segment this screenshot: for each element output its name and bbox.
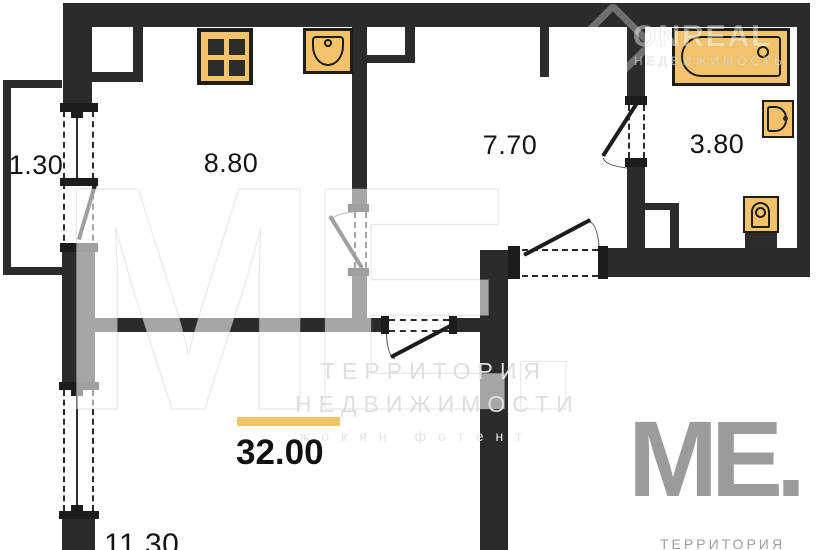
toilet-tank — [745, 233, 777, 248]
washbasin-drain — [783, 116, 788, 121]
wall-shaft2-bottom — [367, 55, 415, 63]
agency-logo: ME. — [628, 405, 799, 513]
kitchen-door-jamb-bottom — [348, 268, 369, 276]
kitchen-door-leaf — [328, 215, 363, 269]
stove-burner — [208, 60, 224, 76]
toilet-seat — [755, 207, 766, 218]
wall-top — [63, 3, 810, 27]
stove-burner — [229, 60, 245, 76]
wall-corridor-vertical — [480, 250, 508, 550]
room-area-label-balcony: 1.30 — [4, 150, 68, 181]
toilet-icon — [743, 196, 779, 233]
wall-shaft1-bottom — [92, 72, 143, 82]
wall-left-mid — [62, 250, 95, 382]
room-area-label-kitchen: 8.80 — [186, 148, 276, 179]
bedroom-door-dash-top — [389, 319, 449, 321]
bedroom-door-jamb-left — [381, 316, 389, 334]
window-sill-bottom — [59, 511, 99, 519]
agency-caption: ТЕРРИТОРИЯ — [660, 536, 785, 550]
wall-divider-stub — [352, 274, 367, 320]
kitchen-door-dash-right — [365, 212, 367, 268]
wall-left-bottom — [62, 519, 95, 550]
kitchen-sink-icon — [303, 28, 353, 74]
room-area-label-hall: 7.70 — [465, 130, 555, 161]
wall-right — [797, 27, 810, 277]
balcony-door-jamb-bottom — [60, 243, 98, 252]
entrance-door-jamb-left — [508, 246, 520, 279]
bathroom-door-leaf — [601, 102, 638, 157]
balcony-window-tab — [71, 111, 83, 118]
wall-left-arm — [63, 27, 92, 110]
window-glass-line — [76, 390, 78, 511]
kitchen-door-jamb-top — [348, 204, 369, 212]
kitchen-door-arc — [332, 211, 363, 220]
balcony-wall-bottom — [3, 267, 62, 275]
watermark-line1: ТЕРРИТОРИЯ — [321, 358, 547, 385]
window-dash-right — [92, 390, 94, 511]
total-area-underline — [237, 417, 340, 426]
wall-bathroom-left-upper — [627, 27, 645, 97]
stove-icon — [197, 28, 253, 85]
wall-horizontal-south-kitchen-b — [453, 318, 480, 332]
entrance-door-dash-bottom — [522, 275, 598, 277]
floor-plan: 1.30 8.80 7.70 3.80 11.30 32.00 ME. ТЕРР… — [0, 0, 820, 550]
bedroom-door-leaf — [390, 323, 453, 359]
wall-shaft3-right — [670, 203, 679, 250]
bathroom-door-jamb-bottom — [625, 158, 647, 167]
watermark-line2: НЕДВИЖИМОСТИ — [295, 391, 580, 418]
washbasin-icon — [762, 100, 794, 138]
wall-stub-top-center — [540, 27, 549, 77]
bathtub-drain — [757, 46, 769, 58]
entrance-door-jamb-right — [598, 246, 608, 279]
total-area-label: 32.00 — [236, 433, 324, 473]
bathtub-icon — [672, 28, 790, 86]
window-dash-left — [63, 390, 65, 511]
stove-burner — [229, 39, 245, 55]
room-area-label-bathroom: 3.80 — [676, 129, 758, 160]
kitchen-sink-drain — [324, 39, 332, 47]
wall-horizontal-south-kitchen — [93, 318, 383, 332]
wall-bathroom-bottom — [608, 248, 797, 277]
window-tab-top — [71, 390, 83, 396]
bathroom-door-dash-right — [643, 105, 645, 158]
balcony-wall-top — [3, 80, 62, 88]
room-area-label-bedroom: 11.30 — [104, 528, 179, 550]
window-sill-top — [59, 382, 99, 390]
balcony-window-glass-line — [76, 114, 78, 178]
stove-burner — [208, 39, 224, 55]
wall-divider-kitchen-hall — [352, 27, 367, 206]
